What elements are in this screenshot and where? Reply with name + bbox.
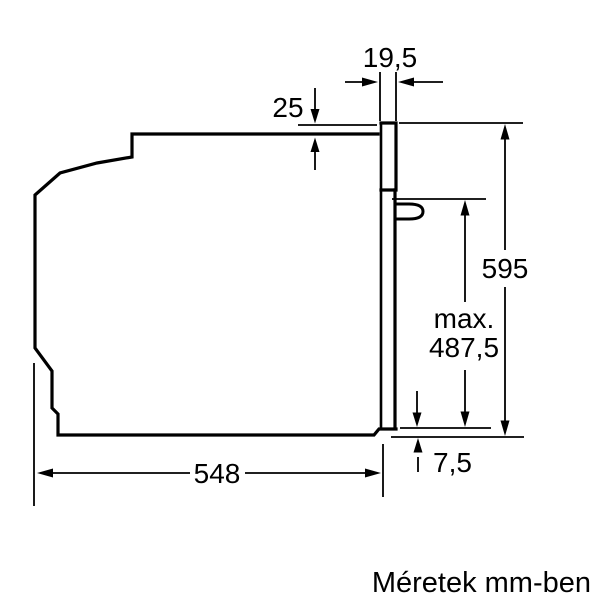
figure-canvas: 19,5 25 595 max [0,0,600,600]
arrow-down-icon [413,413,422,428]
dimension-bottom-clearance: 7,5 [413,391,472,478]
dimension-value: 25 [272,92,303,123]
oven-body-profile [35,134,396,435]
arrow-up-icon [311,138,320,153]
dimension-panel-depth: 19,5 [345,42,443,121]
arrow-down-icon [311,109,320,124]
arrow-up-icon [414,438,423,453]
dimension-value: 548 [194,458,241,489]
units-caption: Méretek mm-ben [372,567,591,599]
arrow-left-icon [37,469,53,478]
arrow-down-icon [461,412,470,428]
control-panel [381,123,396,190]
dimension-value: 487,5 [429,332,499,363]
arrow-right-icon [362,78,378,87]
arrow-down-icon [501,421,510,437]
dimension-value: 7,5 [433,447,472,478]
door-handle [395,204,423,219]
dimension-panel-top-offset: 25 [272,88,377,170]
arrow-up-icon [501,124,510,140]
dimension-front-height: 595 [391,123,528,437]
oven-outline [35,123,423,435]
dimension-max-height: max. 487,5 [392,199,499,428]
arrow-left-icon [398,78,414,87]
arrow-up-icon [461,200,470,216]
dimension-value: 19,5 [363,42,418,73]
arrow-right-icon [365,469,381,478]
dimension-prefix: max. [434,303,495,334]
dimension-value: 595 [482,253,529,284]
oven-dimension-diagram: 19,5 25 595 max [0,0,600,600]
